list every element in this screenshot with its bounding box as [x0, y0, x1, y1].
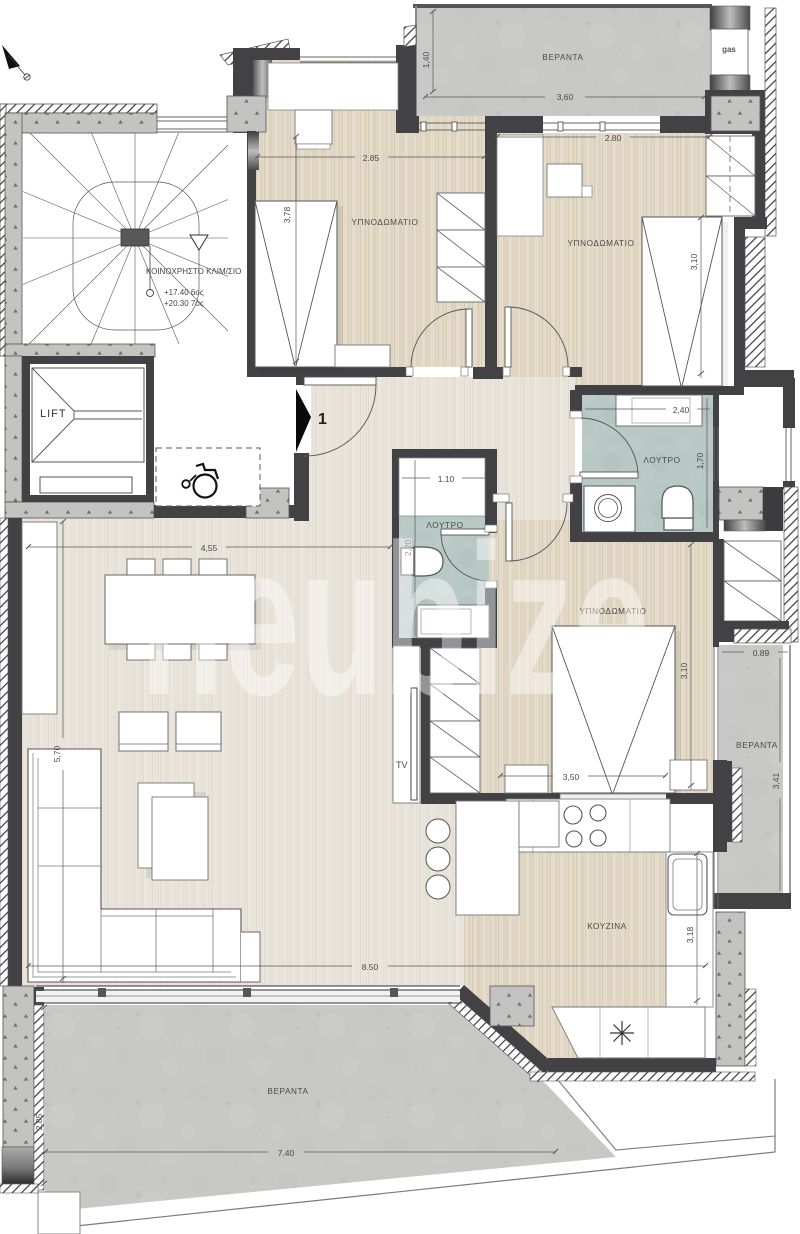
svg-text:+20.30 7ος: +20.30 7ος [164, 299, 204, 308]
svg-text:ΛΟΥΤΡΟ: ΛΟΥΤΡΟ [643, 456, 680, 465]
svg-text:1: 1 [318, 411, 327, 428]
svg-text:3,50: 3,50 [563, 772, 580, 782]
svg-text:gas: gas [722, 45, 736, 54]
svg-text:5,70: 5,70 [52, 745, 62, 762]
svg-text:ΒΕΡΑΝΤΑ: ΒΕΡΑΝΤΑ [542, 53, 583, 62]
svg-text:ΒΕΡΑΝΤΑ: ΒΕΡΑΝΤΑ [267, 1087, 308, 1096]
svg-text:1.10: 1.10 [438, 474, 455, 484]
svg-text:8.50: 8.50 [362, 962, 379, 972]
svg-text:2.85: 2.85 [363, 153, 380, 163]
svg-text:1,40: 1,40 [421, 51, 431, 68]
svg-text:neubize: neubize [140, 499, 650, 740]
svg-text:1,70: 1,70 [695, 452, 705, 469]
svg-text:3,78: 3,78 [282, 206, 292, 223]
svg-text:0.89: 0.89 [753, 648, 770, 658]
svg-text:ΚΟΙΝΟΧΡΗΣΤΟ ΚΛΙΜ/ΣΙΟ: ΚΟΙΝΟΧΡΗΣΤΟ ΚΛΙΜ/ΣΙΟ [146, 267, 241, 276]
svg-text:3,10: 3,10 [679, 662, 689, 679]
svg-text:2.85: 2.85 [34, 1113, 44, 1130]
svg-text:LIFT: LIFT [40, 408, 67, 420]
svg-text:2,40: 2,40 [673, 405, 690, 415]
svg-text:ΒΕΡΑΝΤΑ: ΒΕΡΑΝΤΑ [736, 740, 778, 750]
svg-text:3,18: 3,18 [685, 926, 695, 943]
svg-text:ΥΠΝΟΔΩΜΑΤΙΟ: ΥΠΝΟΔΩΜΑΤΙΟ [352, 218, 419, 227]
svg-text:3,10: 3,10 [689, 253, 699, 270]
svg-text:3,41: 3,41 [771, 772, 781, 789]
svg-text:7.40: 7.40 [278, 1148, 295, 1158]
svg-text:ΚΟΥΖΙΝΑ: ΚΟΥΖΙΝΑ [587, 922, 627, 931]
svg-text:2.80: 2.80 [605, 133, 622, 143]
svg-text:+17.40 6ος: +17.40 6ος [164, 288, 204, 297]
svg-text:3,60: 3,60 [557, 92, 574, 102]
svg-text:TV: TV [396, 760, 408, 770]
svg-text:ΥΠΝΟΔΩΜΑΤΙΟ: ΥΠΝΟΔΩΜΑΤΙΟ [568, 239, 635, 248]
